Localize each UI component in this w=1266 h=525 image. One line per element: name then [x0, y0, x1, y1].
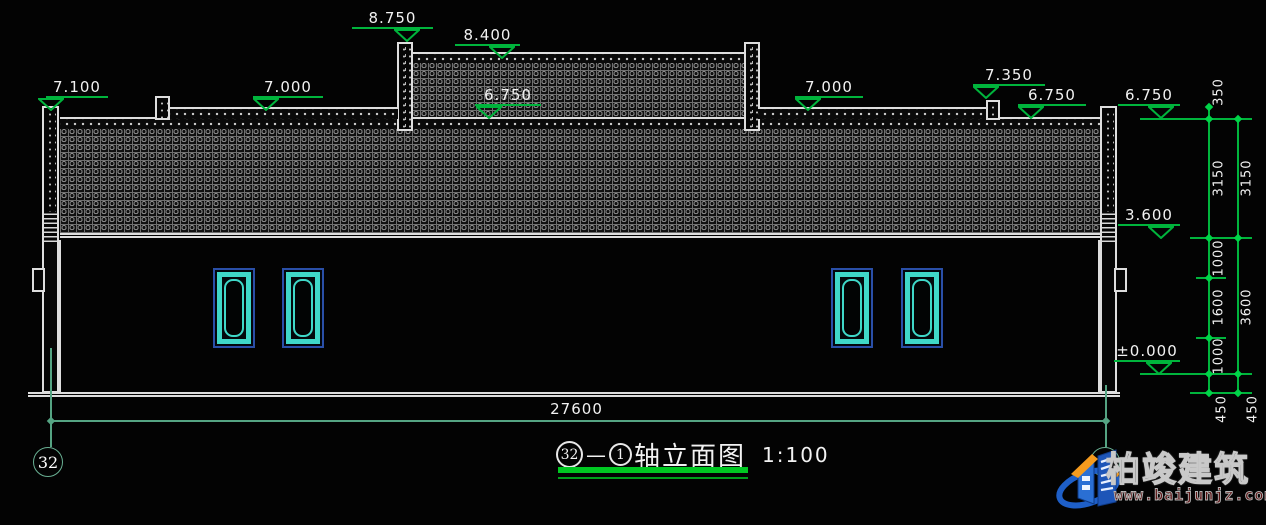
center-raised-roof [412, 52, 745, 117]
dim-tick [1234, 370, 1242, 378]
logo-website: www.baijunjz.com [1114, 486, 1266, 504]
elevation-marker-7350: 7.350 [973, 67, 1045, 86]
column-bracket-right [1114, 268, 1127, 292]
dim-tick [1205, 389, 1213, 397]
elevation-value: 6.750 [1018, 87, 1086, 103]
pillar-centerline [405, 46, 406, 127]
elevation-value: 7.100 [46, 79, 108, 95]
elevation-triangle-icon [1018, 106, 1044, 119]
title-axis-end: 1 [609, 443, 632, 466]
elevation-marker-zero: ±0.000 [1114, 343, 1180, 362]
dim-label-450-inner: 450 [1215, 395, 1230, 423]
center-roof-tiles [412, 63, 745, 117]
title-underline-thick [558, 467, 748, 473]
elevation-value: 3.600 [1118, 207, 1180, 223]
window-frame [217, 272, 251, 344]
window [282, 268, 324, 348]
axis-number: 32 [38, 453, 58, 472]
elevation-marker-7000-left: 7.000 [253, 79, 323, 98]
dim-tick [1234, 115, 1242, 123]
elevation-marker-6750-center: 6.750 [475, 87, 541, 106]
elevation-value: ±0.000 [1114, 343, 1180, 359]
elevation-line [352, 27, 433, 29]
watermark-logo: 柏竣建筑 www.baijunjz.com [1054, 434, 1266, 520]
logo-company-name: 柏竣建筑 [1106, 442, 1250, 491]
window-opening [293, 279, 313, 337]
elevation-triangle-icon [253, 98, 279, 111]
dim-label-450-outer: 450 [1246, 395, 1261, 423]
column-texture [1103, 109, 1114, 212]
elevation-marker-7000-right: 7.000 [795, 79, 863, 98]
dim-tick [1234, 234, 1242, 242]
elevation-value: 8.750 [352, 10, 433, 26]
dim-label-3150-outer: 3150 [1240, 159, 1255, 196]
elevation-triangle-icon [394, 29, 420, 42]
dim-tick [1205, 115, 1213, 123]
pillar-centerline [752, 46, 753, 127]
elevation-value: 7.000 [795, 79, 863, 95]
dim-chain-inner-line [1208, 107, 1210, 393]
parapet-left [170, 107, 398, 119]
window-opening [912, 279, 932, 337]
window [213, 268, 255, 348]
dim-label-3600: 3600 [1240, 288, 1255, 325]
elevation-marker-7100: 7.100 [46, 79, 108, 98]
window-opening [842, 279, 862, 337]
dim-label-1000: 1000 [1212, 239, 1227, 276]
elevation-value: 7.350 [973, 67, 1045, 83]
elevation-value: 6.750 [1118, 87, 1180, 103]
parapet-post-right [986, 100, 1000, 120]
bottom-dim-value: 27600 [48, 400, 1105, 418]
elevation-triangle-icon [1148, 226, 1174, 239]
elevation-value: 6.750 [475, 87, 541, 103]
column-bracket-left [32, 268, 45, 292]
window-frame [286, 272, 320, 344]
elevation-triangle-icon [38, 98, 64, 111]
ground-line [28, 392, 1120, 397]
title-scale: 1:100 [762, 443, 830, 467]
elevation-marker-3600: 3.600 [1118, 207, 1180, 226]
wall-edge-right [1098, 240, 1100, 392]
elevation-triangle-icon [489, 46, 515, 59]
elevation-value: 7.000 [253, 79, 323, 95]
column-texture [45, 109, 56, 212]
wall-edge-left [59, 240, 61, 392]
dim-label-1000b: 1000 [1212, 337, 1227, 374]
elevation-triangle-icon [973, 86, 999, 99]
dim-connector [1190, 392, 1252, 394]
elevation-marker-8400: 8.400 [455, 27, 520, 46]
title-separator: — [586, 443, 606, 467]
elevation-triangle-icon [795, 98, 821, 111]
parapet-band [170, 109, 398, 119]
elevation-marker-6750-right: 6.750 [1018, 87, 1086, 106]
parapet-right [758, 107, 988, 119]
bottom-dim-line [48, 420, 1105, 422]
dim-label-350: 350 [1212, 78, 1227, 106]
window-opening [224, 279, 244, 337]
axis-extension-left [50, 348, 52, 447]
window-frame [905, 272, 939, 344]
parapet-post-left [155, 96, 170, 120]
center-pillar-left [397, 42, 413, 131]
dim-tick [1234, 389, 1242, 397]
center-roof-eave-band [412, 54, 745, 63]
elevation-value: 8.400 [455, 27, 520, 43]
elevation-triangle-icon [476, 106, 502, 119]
main-roof [60, 117, 1105, 233]
dim-label-1600: 1600 [1212, 288, 1227, 325]
title-underline-thin [558, 477, 748, 479]
column-band [44, 212, 57, 242]
title-axis-start: 32 [556, 441, 583, 468]
parapet-band [758, 109, 988, 119]
column-band [1102, 212, 1115, 242]
axis-bubble-32: 32 [33, 447, 63, 477]
elevation-drawing-canvas: 8.750 8.400 7.100 7.000 6.750 7.000 7.35… [0, 0, 1266, 525]
window-frame [835, 272, 869, 344]
main-roof-bottom-edge [60, 233, 1105, 238]
elevation-marker-8750: 8.750 [352, 10, 433, 29]
dim-label-3150-inner: 3150 [1212, 159, 1227, 196]
elevation-marker-6750-datum: 6.750 [1118, 87, 1180, 106]
main-roof-tiles [60, 129, 1105, 233]
window [901, 268, 943, 348]
window [831, 268, 873, 348]
main-roof-eave-band [60, 119, 1105, 129]
